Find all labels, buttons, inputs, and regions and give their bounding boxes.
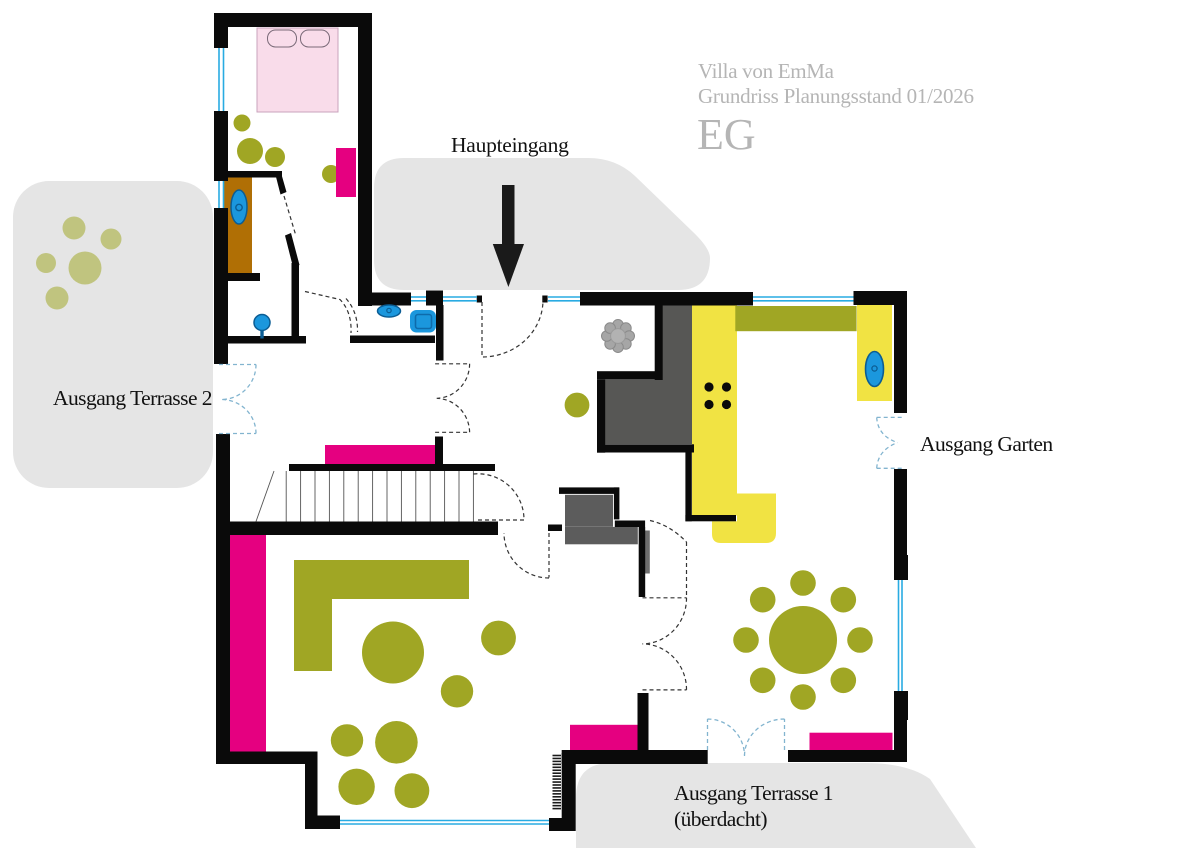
svg-text:Grundriss Planungsstand 01/202: Grundriss Planungsstand 01/2026 (698, 84, 974, 108)
svg-text:Ausgang Terrasse 2: Ausgang Terrasse 2 (53, 386, 212, 410)
svg-text:Villa von EmMa: Villa von EmMa (698, 59, 835, 83)
svg-text:EG: EG (697, 110, 756, 159)
svg-text:Ausgang Garten: Ausgang Garten (920, 432, 1053, 456)
svg-text:Haupteingang: Haupteingang (451, 133, 569, 157)
svg-text:(überdacht): (überdacht) (674, 807, 767, 831)
svg-text:Ausgang Terrasse 1: Ausgang Terrasse 1 (674, 781, 833, 805)
